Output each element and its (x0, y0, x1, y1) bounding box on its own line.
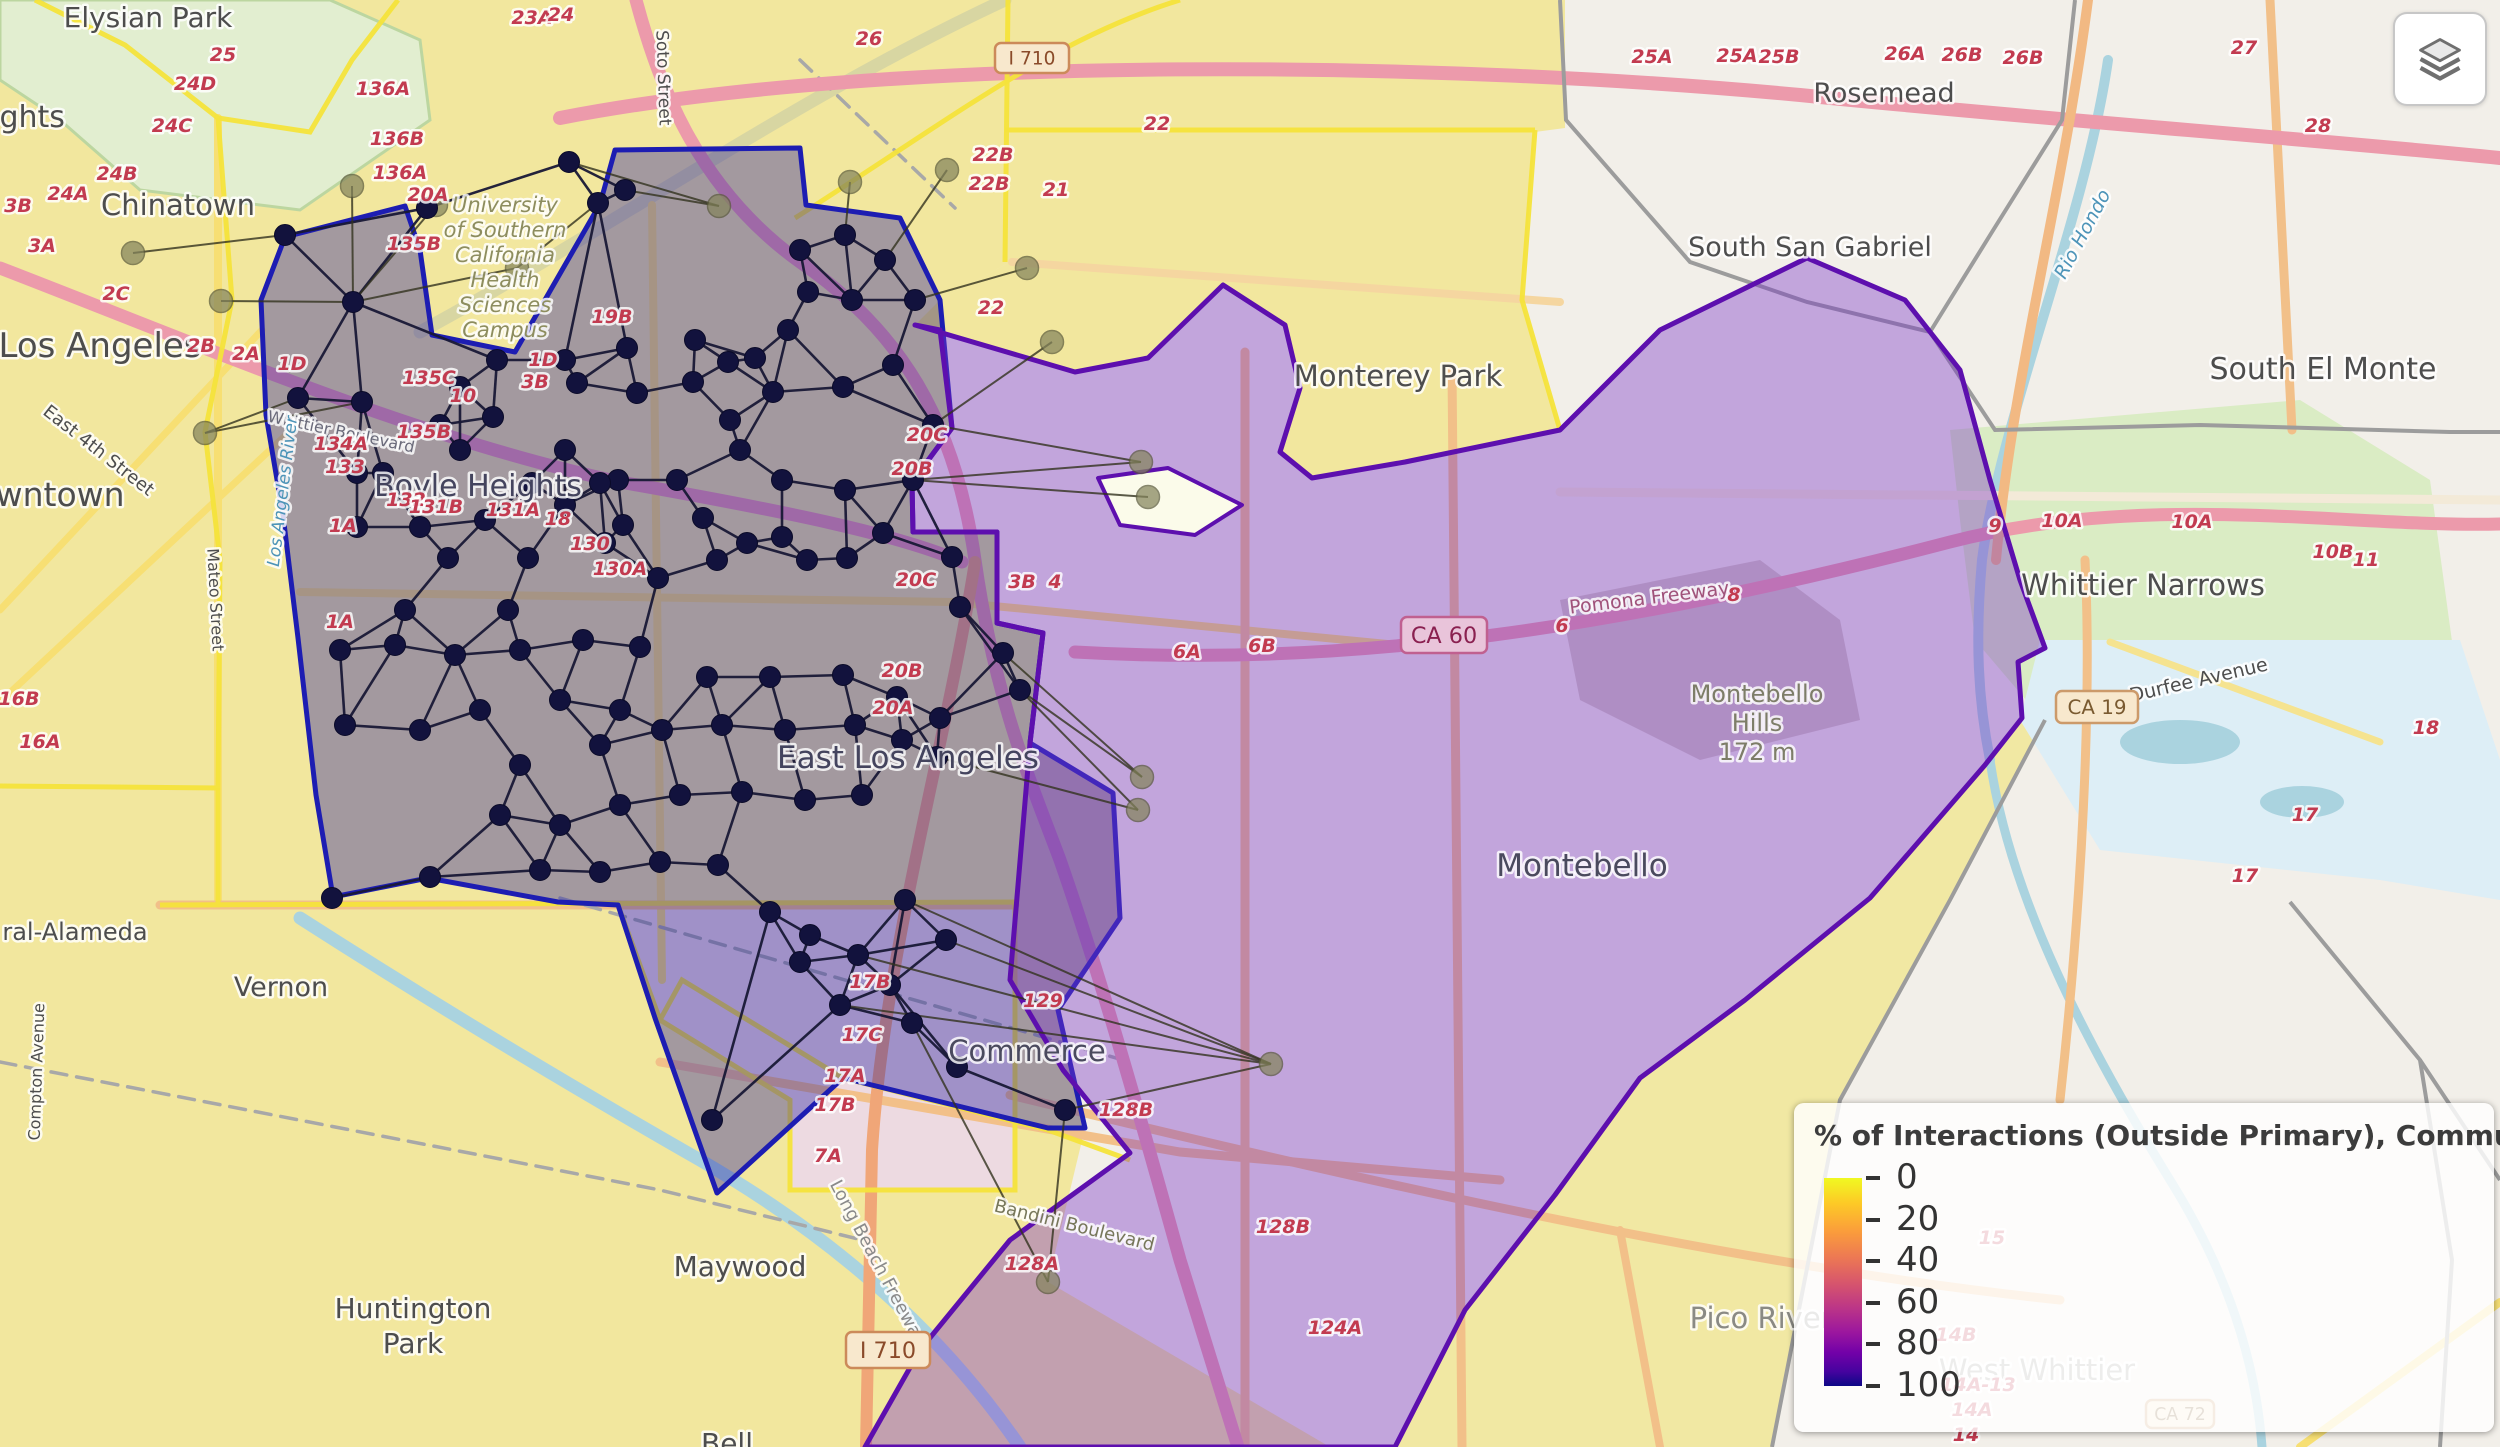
exit-number-label: 20A (407, 184, 448, 206)
exterior-node[interactable] (708, 195, 731, 218)
exit-number-label: 135B (397, 421, 451, 443)
place-label: East Los Angeles (777, 740, 1039, 776)
network-node[interactable] (902, 1013, 923, 1034)
exit-number-label: 16A (19, 731, 60, 753)
place-label: South San Gabriel (1688, 232, 1932, 263)
exit-number-label: 128A (1005, 1253, 1059, 1275)
place-label: Sciences (459, 293, 551, 317)
exit-number-label: 17 (2292, 804, 2319, 826)
network-node[interactable] (702, 1110, 723, 1131)
legend-tick-mark (1866, 1384, 1880, 1388)
network-node[interactable] (833, 377, 854, 398)
exit-number-label: 6 (1555, 615, 1568, 637)
network-node[interactable] (550, 690, 571, 711)
exit-number-label: 20A (872, 697, 913, 719)
place-label: Whittier Narrows (2021, 568, 2265, 602)
place-label: University (452, 193, 559, 217)
exit-number-label: 21 (1043, 179, 1069, 201)
place-label: Monterey Park (1294, 359, 1503, 393)
exit-number-label: 25A (1631, 46, 1672, 68)
exit-number-label: 134A (314, 433, 368, 455)
network-node[interactable] (942, 547, 963, 568)
network-node[interactable] (720, 410, 741, 431)
network-node[interactable] (275, 225, 296, 246)
network-node[interactable] (950, 597, 971, 618)
network-node[interactable] (567, 373, 588, 394)
exterior-link-edge (221, 301, 353, 302)
network-node[interactable] (518, 548, 539, 569)
network-node[interactable] (745, 348, 766, 369)
exit-number-label: 26A (1884, 43, 1925, 65)
network-node[interactable] (450, 440, 471, 461)
exit-number-label: 6B (1248, 635, 1276, 657)
exit-number-label: 24B (97, 163, 138, 185)
street-label: Soto Street (651, 30, 674, 126)
network-node[interactable] (685, 330, 706, 351)
place-label: Montebello (1496, 848, 1668, 884)
exterior-node[interactable] (122, 242, 145, 265)
legend-tick-mark (1866, 1301, 1880, 1305)
network-node[interactable] (1055, 1100, 1076, 1121)
exit-number-label: 131A (486, 499, 540, 521)
exit-number-label: 130A (593, 558, 647, 580)
network-node[interactable] (795, 790, 816, 811)
exit-number-label: 7A (814, 1145, 842, 1167)
place-label: Commerce (948, 1034, 1105, 1068)
legend-tick-mark (1866, 1176, 1880, 1180)
place-label: Health (471, 268, 540, 292)
exit-number-label: 24 (548, 4, 574, 26)
network-node[interactable] (712, 715, 733, 736)
network-node[interactable] (550, 815, 571, 836)
place-label: Bell (701, 1427, 753, 1447)
legend-body: 020406080100 (1814, 1170, 2472, 1410)
place-label: 172 m (1719, 738, 1796, 766)
network-node[interactable] (718, 352, 739, 373)
network-node[interactable] (835, 480, 856, 501)
network-node[interactable] (936, 930, 957, 951)
network-node[interactable] (830, 995, 851, 1016)
exit-number-label: 24A (47, 183, 88, 205)
network-node[interactable] (737, 533, 758, 554)
exterior-node[interactable] (1131, 766, 1154, 789)
legend-tick-label: 0 (1896, 1160, 1918, 1194)
exit-number-label: 10A (2041, 510, 2082, 532)
exterior-node[interactable] (839, 171, 862, 194)
exit-number-label: 20C (896, 569, 936, 591)
exit-number-label: 136A (373, 162, 427, 184)
legend-tick-mark (1866, 1218, 1880, 1222)
exit-number-label: 129 (1023, 990, 1063, 1012)
layers-control-button[interactable] (2393, 12, 2487, 106)
exit-number-label: 1D (529, 349, 558, 371)
network-node[interactable] (627, 383, 648, 404)
exit-number-label: 22 (978, 297, 1004, 319)
lake (2120, 720, 2240, 764)
place-label: owntown (0, 475, 125, 514)
network-node[interactable] (875, 250, 896, 271)
place-label: Los Angeles (0, 326, 202, 366)
network-node[interactable] (693, 508, 714, 529)
exterior-node[interactable] (1016, 257, 1039, 280)
route-shield-label: I 710 (1009, 49, 1056, 70)
exterior-node[interactable] (1127, 799, 1150, 822)
exit-number-label: 25A (1716, 45, 1757, 67)
exit-number-label: 1A (326, 611, 354, 633)
network-node[interactable] (330, 640, 351, 661)
exit-number-label: 135B (387, 233, 441, 255)
legend-tick-label: 100 (1896, 1368, 1961, 1402)
exterior-node[interactable] (1130, 451, 1153, 474)
network-node[interactable] (288, 388, 309, 409)
exterior-node[interactable] (341, 175, 364, 198)
network-node[interactable] (790, 952, 811, 973)
exit-number-label: 17B (850, 971, 891, 993)
exit-number-label: 24C (152, 115, 192, 137)
network-node[interactable] (410, 517, 431, 538)
place-label: South El Monte (2209, 352, 2436, 387)
legend-tick-label: 20 (1896, 1202, 1939, 1236)
network-node[interactable] (470, 700, 491, 721)
exit-number-label: 18 (2413, 717, 2439, 739)
exit-number-label: 3B (521, 371, 549, 393)
network-node[interactable] (833, 665, 854, 686)
exit-number-label: 20C (907, 424, 947, 446)
route-shield-label: CA 60 (1411, 623, 1477, 649)
network-node[interactable] (670, 785, 691, 806)
legend-tick-label: 60 (1896, 1285, 1939, 1319)
exit-number-label: 26 (856, 28, 882, 50)
network-node[interactable] (395, 600, 416, 621)
network-node[interactable] (590, 473, 611, 494)
exit-number-label: 19B (592, 306, 633, 328)
exit-number-label: 128B (1099, 1099, 1153, 1121)
map-viewport[interactable]: Elysian ParkChinatownightsLos Angelesown… (0, 0, 2500, 1447)
exit-number-label: 4 (1047, 571, 1061, 593)
exit-number-label: 27 (2231, 37, 2258, 59)
layers-icon (2417, 36, 2463, 82)
exit-number-label: 133 (325, 456, 365, 478)
network-node[interactable] (335, 715, 356, 736)
legend-tick-label: 40 (1896, 1243, 1939, 1277)
network-node[interactable] (385, 635, 406, 656)
exit-number-label: 11 (2353, 549, 2379, 571)
exit-number-label: 25 (210, 44, 236, 66)
network-node[interactable] (617, 338, 638, 359)
exit-number-label: 20B (892, 458, 933, 480)
exit-number-label: 6A (1173, 641, 1201, 663)
exit-number-label: 17C (842, 1024, 882, 1046)
network-node[interactable] (559, 152, 580, 173)
network-node[interactable] (530, 860, 551, 881)
exit-number-label: 128B (1256, 1216, 1310, 1238)
network-node[interactable] (730, 440, 751, 461)
legend-tick-mark (1866, 1259, 1880, 1263)
exterior-link-edge (352, 186, 353, 302)
exit-number-label: 3A (28, 235, 56, 257)
exit-number-label: 130 (570, 533, 610, 555)
network-node[interactable] (608, 470, 629, 491)
legend: % of Interactions (Outside Primary), Com… (1794, 1103, 2494, 1432)
exit-number-label: 10A (2171, 511, 2212, 533)
exit-number-label: 17 (2232, 865, 2259, 887)
network-node[interactable] (1010, 680, 1031, 701)
network-node[interactable] (573, 630, 594, 651)
exit-number-label: 10B (2313, 541, 2354, 563)
network-node[interactable] (775, 720, 796, 741)
exit-number-label: 1D (278, 353, 307, 375)
network-node[interactable] (772, 470, 793, 491)
network-node[interactable] (697, 667, 718, 688)
network-node[interactable] (648, 568, 669, 589)
network-node[interactable] (708, 855, 729, 876)
network-node[interactable] (842, 290, 863, 311)
network-node[interactable] (760, 667, 781, 688)
exterior-node[interactable] (210, 290, 233, 313)
exit-number-label: 23A (511, 7, 552, 29)
network-node[interactable] (848, 945, 869, 966)
exit-number-label: 28 (2305, 115, 2331, 137)
exit-number-label: 26B (1942, 44, 1983, 66)
network-node[interactable] (763, 382, 784, 403)
exit-number-label: 135C (402, 367, 456, 389)
network-node[interactable] (438, 548, 459, 569)
network-node[interactable] (352, 392, 373, 413)
network-node[interactable] (790, 240, 811, 261)
network-node[interactable] (798, 282, 819, 303)
network-node[interactable] (555, 440, 576, 461)
exit-number-label: 22B (973, 144, 1014, 166)
network-node[interactable] (837, 548, 858, 569)
exit-number-label: 17B (815, 1094, 856, 1116)
network-node[interactable] (683, 372, 704, 393)
network-node[interactable] (510, 755, 531, 776)
network-node[interactable] (667, 470, 688, 491)
place-label: ral-Alameda (2, 918, 147, 946)
exterior-node[interactable] (194, 422, 217, 445)
exit-number-label: 16B (0, 688, 39, 710)
network-node[interactable] (905, 290, 926, 311)
place-label: ights (0, 100, 65, 135)
network-node[interactable] (483, 407, 504, 428)
exit-number-label: 136A (356, 78, 410, 100)
exit-number-label: 3B (4, 195, 32, 217)
network-node[interactable] (610, 700, 631, 721)
place-label: Montebello (1691, 680, 1824, 708)
place-label: Hills (1732, 709, 1783, 737)
legend-tick-label: 80 (1896, 1326, 1939, 1360)
exit-number-label: 20B (882, 660, 923, 682)
network-node[interactable] (590, 735, 611, 756)
exit-number-label: 124A (1308, 1317, 1362, 1339)
exit-number-label: 18 (545, 508, 571, 530)
place-label: California (455, 243, 555, 267)
network-node[interactable] (490, 805, 511, 826)
network-node[interactable] (707, 550, 728, 571)
network-node[interactable] (498, 600, 519, 621)
network-node[interactable] (760, 902, 781, 923)
place-label: Maywood (674, 1250, 807, 1283)
route-shield-label: CA 19 (2068, 696, 2127, 719)
exit-number-label: 22B (969, 173, 1010, 195)
route-shield-label: I 710 (860, 1338, 916, 1364)
exit-number-label: 22 (1144, 113, 1170, 135)
legend-tick-mark (1866, 1342, 1880, 1346)
place-label: Huntington (335, 1292, 492, 1325)
network-node[interactable] (630, 637, 651, 658)
network-node[interactable] (652, 720, 673, 741)
network-node[interactable] (555, 350, 576, 371)
exit-number-label: 17A (824, 1065, 865, 1087)
exterior-node[interactable] (936, 159, 959, 182)
place-label: Chinatown (101, 188, 255, 222)
exit-number-label: 2B (187, 335, 215, 357)
network-node[interactable] (343, 292, 364, 313)
wetland (2020, 640, 2500, 900)
exit-number-label: 8 (1727, 584, 1740, 606)
network-node[interactable] (895, 890, 916, 911)
place-label: of Southern (444, 218, 567, 242)
exit-number-label: 9 (1988, 515, 2001, 537)
network-node[interactable] (993, 643, 1014, 664)
network-node[interactable] (613, 515, 634, 536)
exit-number-label: 2C (102, 283, 129, 305)
network-node[interactable] (930, 708, 951, 729)
network-node[interactable] (845, 715, 866, 736)
place-label: Vernon (234, 972, 328, 1003)
network-node[interactable] (772, 527, 793, 548)
network-node[interactable] (322, 888, 343, 909)
network-node[interactable] (732, 782, 753, 803)
network-node[interactable] (420, 867, 441, 888)
place-label: Campus (462, 318, 548, 342)
exit-number-label: 24D (174, 73, 216, 95)
network-node[interactable] (797, 550, 818, 571)
network-node[interactable] (778, 320, 799, 341)
exterior-node[interactable] (1137, 486, 1160, 509)
place-label: Elysian Park (64, 1, 234, 34)
exit-number-label: 3B (1008, 571, 1036, 593)
exit-number-label: 2A (232, 343, 260, 365)
network-node[interactable] (588, 193, 609, 214)
exit-number-label: 131B (409, 496, 463, 518)
place-label: Park (383, 1327, 444, 1360)
network-node[interactable] (610, 795, 631, 816)
network-node[interactable] (650, 852, 671, 873)
exit-number-label: 25B (1759, 46, 1800, 68)
network-node[interactable] (852, 785, 873, 806)
network-node[interactable] (615, 180, 636, 201)
network-node[interactable] (800, 925, 821, 946)
network-node[interactable] (510, 640, 531, 661)
exit-number-label: 26B (2003, 47, 2044, 69)
network-node[interactable] (883, 355, 904, 376)
place-label: Rosemead (1813, 78, 1954, 109)
network-node[interactable] (873, 523, 894, 544)
exterior-node[interactable] (1041, 331, 1064, 354)
network-node[interactable] (487, 350, 508, 371)
legend-title: % of Interactions (Outside Primary), Com… (1814, 1119, 2472, 1152)
legend-gradient-bar (1824, 1178, 1862, 1386)
network-node[interactable] (835, 225, 856, 246)
network-node[interactable] (445, 645, 466, 666)
network-node[interactable] (590, 862, 611, 883)
exterior-node[interactable] (1260, 1053, 1283, 1076)
exit-number-label: 136B (370, 128, 424, 150)
network-node[interactable] (410, 720, 431, 741)
exit-number-label: 1A (329, 515, 357, 537)
